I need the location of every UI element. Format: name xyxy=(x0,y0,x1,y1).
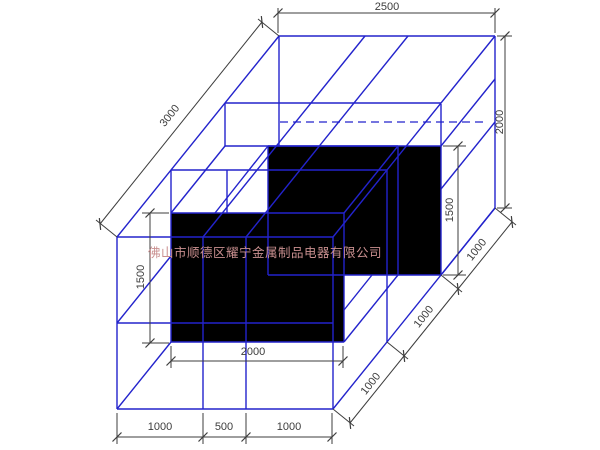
cad-viewport: 2500300020001500150020001000500100010001… xyxy=(0,0,600,450)
watermark-text: 佛山市顺德区耀宁金属制品电器有限公司 xyxy=(148,245,382,260)
dimension-tick xyxy=(99,218,100,230)
wire-line xyxy=(441,79,495,146)
dimension-extension-line xyxy=(387,342,408,359)
drawing-canvas: 2500300020001500150020001000500100010001… xyxy=(0,0,600,450)
dimension-label: 1000 xyxy=(148,421,172,433)
dimension-tick xyxy=(511,216,512,228)
dimension-label: 1000 xyxy=(277,421,301,433)
dimension-extension-line xyxy=(96,220,117,237)
dimension-extension-line xyxy=(258,19,279,36)
wire-line xyxy=(215,146,268,213)
wire-line xyxy=(171,146,225,213)
dimension-tick xyxy=(261,16,262,28)
dimension-label: 500 xyxy=(215,421,233,433)
dimension-label: 2000 xyxy=(494,110,506,134)
dimension-label: 2000 xyxy=(241,346,265,358)
dimension-label: 1000 xyxy=(359,371,384,398)
wire-line xyxy=(117,342,171,409)
dimension-label: 2500 xyxy=(375,1,399,13)
dimension-extension-line xyxy=(495,208,516,225)
dimension-label: 1500 xyxy=(444,198,456,222)
dimension-extension-line xyxy=(441,275,462,292)
dimension-extension-line xyxy=(333,409,354,426)
dimension-label: 1500 xyxy=(135,265,147,289)
wire-line xyxy=(117,36,279,237)
wire-line xyxy=(344,275,398,342)
wire-line xyxy=(441,122,495,189)
wire-line xyxy=(344,275,372,310)
dimension-tick xyxy=(349,417,350,429)
